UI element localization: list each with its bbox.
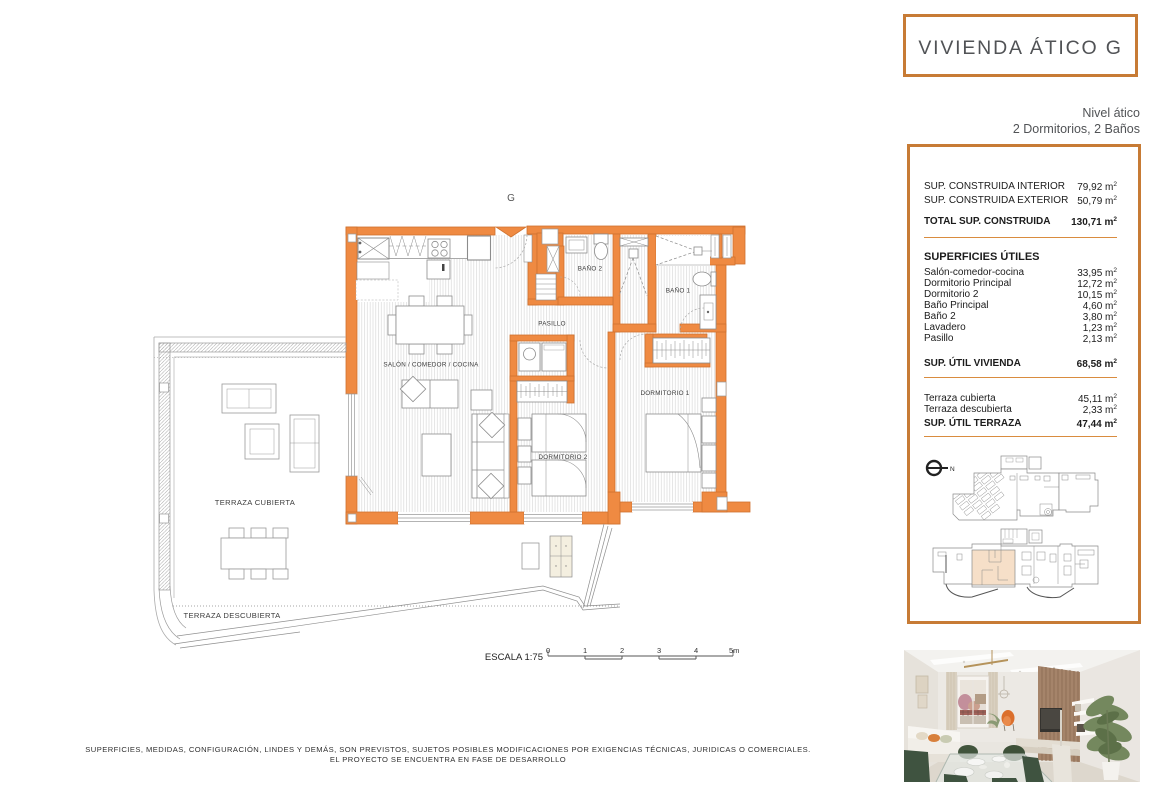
svg-text:TERRAZA CUBIERTA: TERRAZA CUBIERTA (215, 498, 296, 507)
svg-text:3: 3 (657, 646, 661, 655)
svg-text:G: G (507, 193, 515, 204)
svg-text:BAÑO 1: BAÑO 1 (666, 286, 691, 295)
svg-text:PASILLO: PASILLO (538, 321, 566, 328)
svg-text:TERRAZA DESCUBIERTA: TERRAZA DESCUBIERTA (183, 611, 281, 620)
svg-text:SALÓN / COMEDOR / COCINA: SALÓN / COMEDOR / COCINA (383, 360, 479, 369)
svg-text:0: 0 (546, 646, 550, 655)
svg-text:2: 2 (620, 646, 624, 655)
svg-text:BAÑO 2: BAÑO 2 (578, 264, 603, 273)
svg-text:1: 1 (583, 646, 587, 655)
svg-text:5m: 5m (729, 646, 739, 655)
svg-text:DORMITORIO 2: DORMITORIO 2 (538, 454, 587, 461)
svg-text:ESCALA 1:75: ESCALA 1:75 (485, 652, 543, 663)
svg-text:4: 4 (694, 646, 698, 655)
svg-text:DORMITORIO 1: DORMITORIO 1 (640, 390, 689, 397)
